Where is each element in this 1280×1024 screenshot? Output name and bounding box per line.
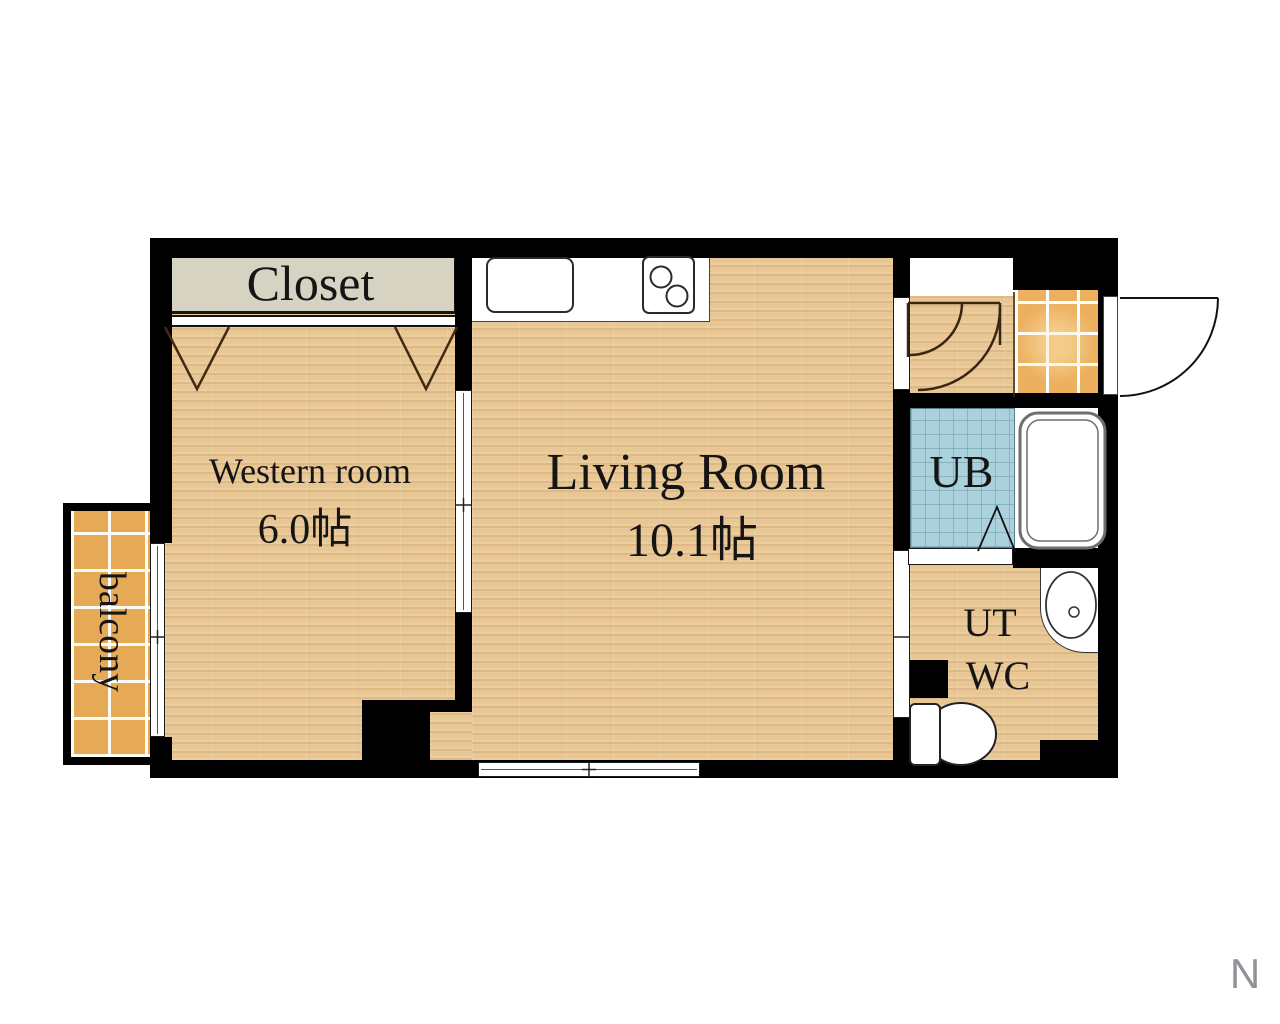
living-room-window <box>478 762 700 777</box>
bathtub-area <box>1015 408 1098 548</box>
hall-opening <box>893 297 910 390</box>
utility-sliding-door <box>893 550 910 718</box>
utility-label: UT <box>930 602 1050 644</box>
balcony-rail-top <box>63 503 157 511</box>
balcony-window <box>150 543 165 737</box>
bath-door-strip <box>908 548 1013 565</box>
western-room-label: Western room <box>160 453 460 491</box>
floor-plan: Closet Western room 6.0帖 Living Room 10.… <box>0 0 1280 1024</box>
wall-pillar <box>362 700 430 778</box>
closet-label: Closet <box>164 254 457 312</box>
wall-wc-corner <box>1040 740 1108 765</box>
wall-ub-bottom <box>1013 548 1110 568</box>
wall-hall-bottom <box>893 718 910 777</box>
entry-doorway <box>1103 296 1118 395</box>
north-indicator: N <box>1215 952 1275 996</box>
kitchen-counter <box>470 252 710 322</box>
balcony-label: balcony <box>91 532 131 732</box>
living-room-label: Living Room <box>496 446 876 501</box>
wall-pillar-link <box>430 700 472 712</box>
living-room-floor <box>472 250 893 762</box>
entry-tile-floor <box>1015 290 1098 397</box>
wc-label: WC <box>928 655 1068 697</box>
balcony-rail-bottom <box>63 757 157 765</box>
balcony-rail-left <box>63 503 71 765</box>
floor-patch <box>430 712 472 760</box>
closet-door-track <box>164 315 457 327</box>
wall-hall-top <box>893 238 910 297</box>
unit-bath-label: UB <box>908 448 1015 496</box>
shoe-storage <box>910 256 1013 296</box>
entry-door-swing-icon <box>1120 298 1218 396</box>
western-room-sliding-door <box>455 390 472 613</box>
western-room-size: 6.0帖 <box>160 508 450 552</box>
wall-divider-top <box>455 238 472 390</box>
living-room-size: 10.1帖 <box>512 516 872 566</box>
wall-top-right-block <box>1013 238 1118 290</box>
wall-ub-top <box>893 393 1110 408</box>
entry-hall-floor <box>910 292 1015 397</box>
wall-divider-bottom <box>455 613 472 712</box>
